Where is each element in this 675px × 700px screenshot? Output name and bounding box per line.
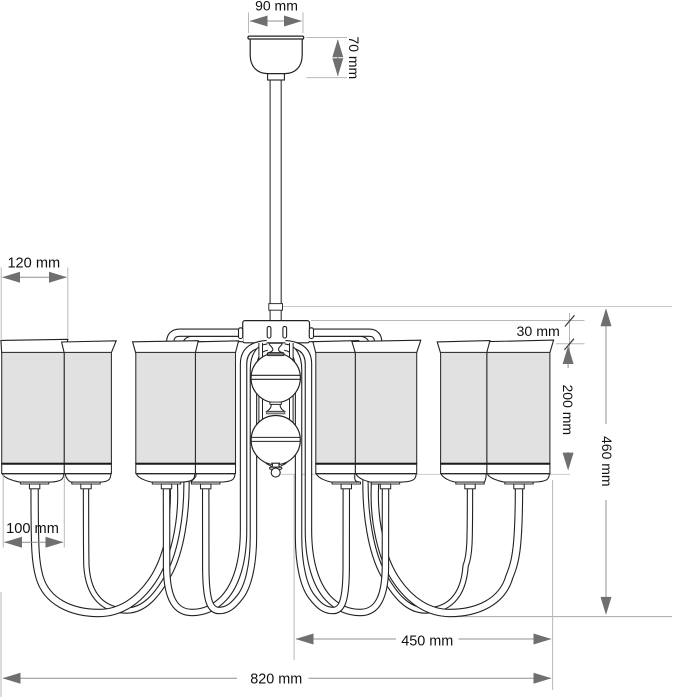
svg-text:90 mm: 90 mm (255, 0, 298, 13)
svg-text:460 mm: 460 mm (599, 436, 615, 487)
svg-text:820 mm: 820 mm (250, 671, 302, 687)
svg-text:450 mm: 450 mm (401, 634, 453, 650)
svg-text:100 mm: 100 mm (6, 521, 59, 537)
svg-text:120 mm: 120 mm (7, 255, 60, 271)
svg-text:30 mm: 30 mm (517, 324, 560, 340)
svg-text:70 mm: 70 mm (346, 36, 362, 79)
svg-text:200 mm: 200 mm (560, 385, 576, 436)
